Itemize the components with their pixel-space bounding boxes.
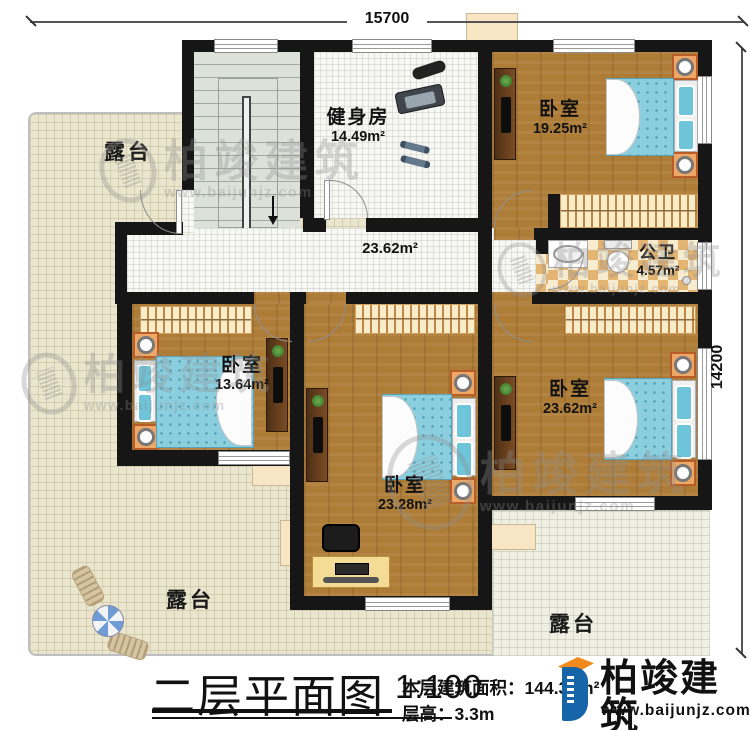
stair-arrow-head [268, 216, 278, 225]
wall [534, 228, 548, 240]
terrace-label-bottom-left: 露台 [158, 584, 222, 614]
watermark: 柏竣建筑 www.baijunjz.com [498, 242, 726, 298]
watermark-logo-icon [490, 235, 554, 304]
title-underline [152, 709, 392, 713]
plant-icon [500, 383, 512, 395]
brand-website: www.baijunjz.com [601, 702, 750, 720]
watermark-website: www.baijunjz.com [84, 397, 276, 413]
closet [355, 304, 475, 334]
watermark-website: www.baijunjz.com [480, 498, 690, 515]
window [553, 39, 635, 53]
room-name: 卧室 [505, 100, 615, 121]
room-area: 19.25m² [505, 121, 615, 137]
closet [140, 306, 252, 334]
nightstand [450, 370, 476, 396]
door-gap [494, 228, 534, 240]
window [365, 597, 450, 611]
wall [548, 228, 712, 240]
room-area: 23.62m² [520, 401, 620, 417]
watermark: 柏竣建筑 www.baijunjz.com [388, 434, 690, 531]
room-name: 健身房 [308, 108, 408, 129]
nightstand [672, 152, 698, 178]
computer-monitor-icon [313, 417, 323, 453]
dimension-line-right [741, 48, 743, 654]
room-name: 卧室 [520, 380, 620, 401]
room-area: 23.62m² [350, 240, 430, 257]
watermark-logo-icon [374, 423, 486, 543]
watermark-name: 柏竣建筑 [480, 451, 690, 497]
watermark-logo-icon [91, 130, 166, 210]
window [214, 39, 278, 53]
floor-height-info: 层高：3.3m [402, 701, 494, 726]
office-chair [322, 524, 360, 552]
door-gap [306, 292, 346, 304]
wall [303, 218, 326, 232]
wall [115, 292, 254, 304]
watermark-name: 柏竣建筑 [164, 140, 365, 184]
nightstand [672, 54, 698, 80]
desk-lamp-icon [323, 577, 379, 583]
terrace-label-bottom-right: 露台 [541, 608, 605, 638]
window [697, 76, 712, 144]
room-label-bedroom-se: 卧室 23.62m² [520, 380, 620, 417]
watermark-name: 柏竣建筑 [553, 243, 726, 281]
watermark: 柏竣建筑 www.baijunjz.com [100, 138, 365, 203]
door-gap [254, 292, 294, 304]
pillow [677, 85, 695, 117]
plant-icon [500, 75, 512, 87]
wall [290, 292, 304, 610]
closet [560, 194, 698, 228]
nightstand [670, 352, 696, 378]
floor-plan: 健身房 14.49m² 卧室 19.25m² 公卫 4.57m² 23.62m²… [0, 0, 750, 730]
chimney [466, 13, 518, 41]
watermark: 柏竣建筑 www.baijunjz.com [22, 352, 275, 415]
wall [346, 292, 492, 304]
watermark-logo-icon [13, 345, 85, 422]
closet [565, 306, 696, 334]
plan-title: 二层平面图 [150, 660, 385, 725]
bed-headboard [674, 80, 698, 152]
pillow [677, 119, 695, 151]
patio-umbrella [92, 605, 124, 637]
window [352, 39, 432, 53]
watermark-name: 柏竣建筑 [84, 354, 276, 396]
watermark-website: www.baijunjz.com [553, 282, 726, 296]
room-label-hallway: 23.62m² [350, 240, 430, 257]
wall [366, 218, 478, 232]
plant-icon [312, 395, 324, 407]
watermark-website: www.baijunjz.com [164, 185, 365, 201]
dimension-height: 14200 [709, 317, 727, 417]
wall [478, 40, 492, 240]
dimension-width: 15700 [347, 10, 427, 28]
room-label-bedroom-ne: 卧室 19.25m² [505, 100, 615, 137]
hallway-floor [127, 228, 536, 292]
window [218, 451, 290, 465]
laptop-icon [335, 563, 369, 575]
pillow [675, 385, 693, 421]
desk [306, 388, 328, 482]
brand-logo-icon [550, 655, 598, 725]
writing-desk [312, 556, 390, 588]
